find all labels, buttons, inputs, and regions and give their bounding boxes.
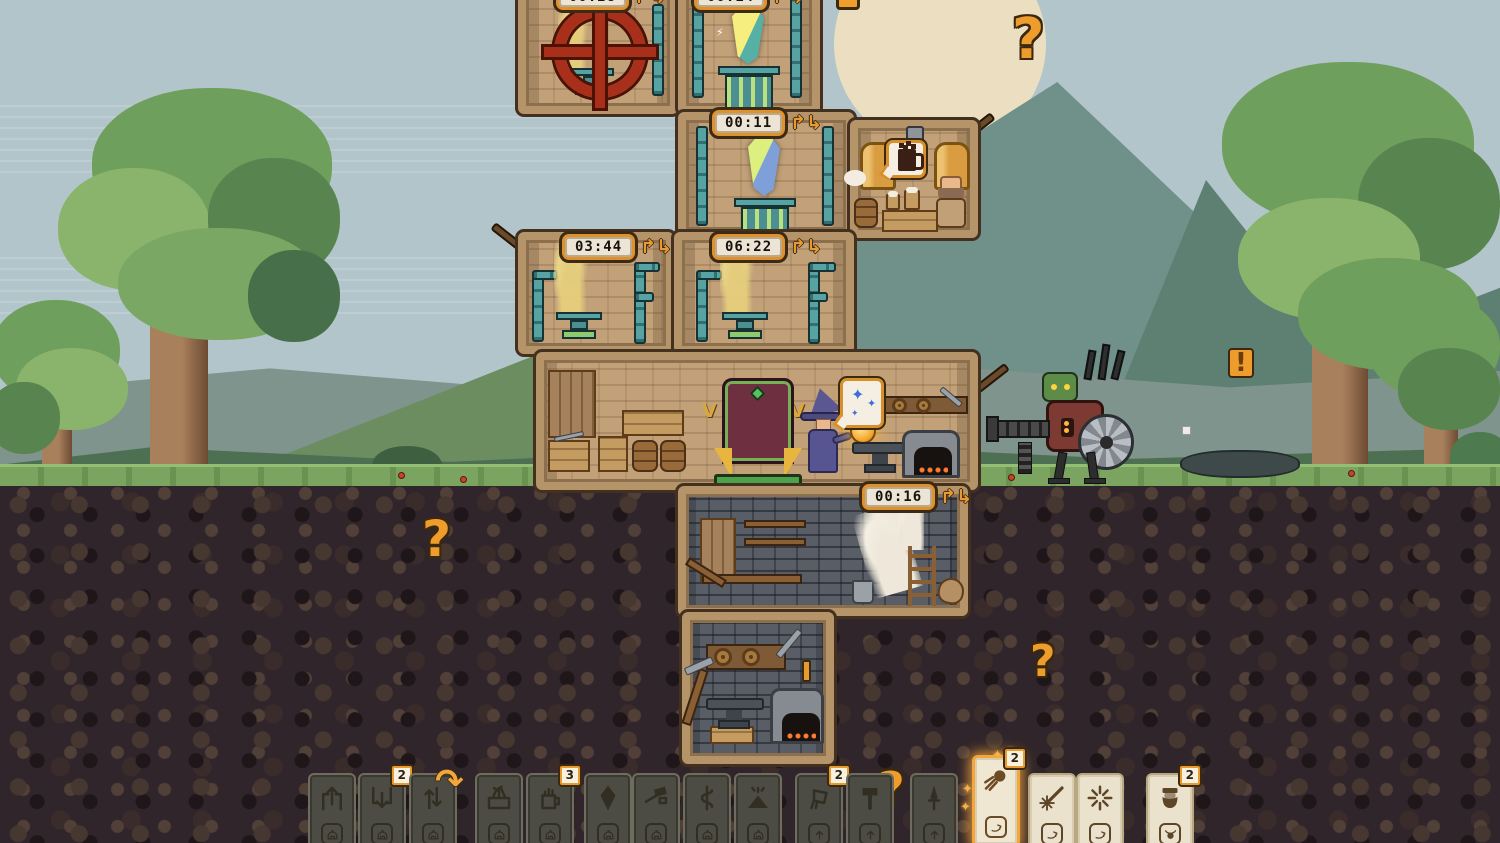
mushroom [398, 472, 405, 479]
cut-bubble-chip [836, 0, 860, 10]
fireball-icon [981, 766, 1011, 796]
pipe [532, 276, 544, 342]
room-brewery[interactable] [850, 120, 978, 238]
mech-foot [1084, 478, 1106, 484]
mushroom [1348, 470, 1355, 477]
beer-mug [886, 194, 900, 210]
fallen-enemy-corpse [1180, 450, 1300, 478]
room-great-hall[interactable]: V V ✦ ✦ ✦ [536, 352, 978, 490]
redo-swoosh-icon [1041, 823, 1063, 843]
throne[interactable] [722, 378, 794, 482]
alchemy-vent[interactable] [556, 312, 602, 344]
timer-value: 00:28 [556, 0, 629, 10]
steam-puff [844, 170, 866, 186]
anvil[interactable] [706, 698, 766, 732]
foliage-blob [248, 250, 340, 342]
toolbox-crate [548, 440, 590, 472]
spark-bolt-icon [1037, 783, 1067, 813]
card-count-badge: 3 [560, 766, 580, 785]
timer-vent-left[interactable]: 03:44↱↳ [562, 234, 672, 260]
helmet-icon [696, 823, 718, 843]
helmet-icon [488, 823, 510, 843]
wooden-door [548, 370, 596, 438]
timer-crystal[interactable]: 00:11↱↳ [712, 110, 822, 136]
crystal-pedestal [718, 66, 780, 100]
barrel [854, 198, 878, 228]
card-spell-fan[interactable] [734, 773, 782, 843]
helmet-icon [747, 823, 769, 843]
card-hammer[interactable] [846, 773, 894, 843]
timer-adjust-arrows-icon[interactable]: ↱↳ [790, 236, 822, 258]
foliage-blob [1398, 348, 1500, 430]
sparkle-icon: ✦ [851, 409, 859, 419]
beer-mug [904, 190, 920, 210]
card-spark-bolt[interactable] [1028, 773, 1076, 843]
mech-foot [1048, 478, 1070, 484]
ladder[interactable] [908, 546, 936, 606]
forge-furnace[interactable] [902, 430, 960, 478]
pipe [634, 262, 660, 272]
goblin-mech-enemy[interactable] [1036, 356, 1136, 484]
mana-crystal[interactable] [744, 128, 784, 196]
timer-adjust-arrows-icon[interactable]: ↱↳ [640, 236, 672, 258]
cycle-hook-icon: ↷ [435, 762, 464, 802]
timer-adjust-arrows-icon[interactable]: ↱↳ [772, 0, 804, 8]
pipe [696, 126, 708, 226]
exclamation-mark-field: ! [1228, 348, 1254, 378]
card-dwarf[interactable]: 2 [1146, 773, 1194, 843]
arrow-up-icon [859, 823, 881, 843]
sparkle-icon: ✦ [851, 385, 864, 404]
brew-mug-icon [535, 783, 565, 813]
card-tool[interactable] [632, 773, 680, 843]
saw-hub [1100, 436, 1113, 449]
question-mark-sky: ? [1012, 12, 1044, 68]
timer-crystal-top[interactable]: 00:14↱↳ [694, 0, 804, 10]
card-gem[interactable] [584, 773, 632, 843]
gun-muzzle [986, 416, 999, 442]
card-weapon-crate[interactable] [475, 773, 523, 843]
pipe [634, 262, 646, 344]
room-crystal-top[interactable]: ⚡ [678, 0, 820, 114]
timer-value: 03:44 [562, 234, 635, 260]
pipe [692, 0, 704, 98]
card-burst[interactable] [1076, 773, 1124, 843]
dwarf-face-icon [1155, 783, 1185, 813]
card-glow-sparkle-icon: ✦ [960, 800, 971, 815]
redo-swoosh-icon [1089, 823, 1111, 843]
beer-mug-icon [898, 149, 916, 171]
question-mark-underground-left: ? [422, 514, 451, 564]
gun-spring [1018, 442, 1032, 474]
pipe [634, 292, 654, 302]
hex-nut [714, 648, 732, 666]
wall-shelf [744, 538, 806, 546]
pipe [696, 276, 708, 342]
card-fireball[interactable]: 2 [972, 755, 1020, 843]
timer-wheel-room[interactable]: 00:28↱↳ [556, 0, 666, 10]
arrow-up-icon [923, 823, 945, 843]
hammer-icon [855, 783, 885, 813]
pipe [808, 262, 836, 272]
timer-adjust-arrows-icon[interactable]: ↱↳ [940, 486, 972, 508]
crate-stack [598, 436, 628, 472]
room-control-wheel[interactable] [518, 0, 678, 114]
timer-value: 00:14 [694, 0, 767, 10]
dagger-icon [919, 783, 949, 813]
sparkle-icon: ✦ [867, 397, 876, 410]
timer-underground[interactable]: 00:16↱↳ [862, 484, 972, 510]
helmet-icon [321, 823, 343, 843]
question-mark-underground-right: ? [1030, 640, 1056, 684]
timer-vent-right[interactable]: 06:22↱↳ [712, 234, 822, 260]
pipe [808, 262, 820, 344]
card-insert-down[interactable]: 2 [358, 773, 406, 843]
card-glow-sparkle-icon: ✦ [992, 748, 1003, 763]
eject-up-icon [317, 783, 347, 813]
arrow-up-icon [808, 823, 830, 843]
mech-leg [1054, 451, 1068, 480]
crystal-pedestal [734, 198, 796, 230]
insert-down-icon [367, 783, 397, 813]
pipe [808, 292, 828, 302]
burst-icon [1085, 783, 1115, 813]
hex-nut [892, 398, 907, 413]
helmet-icon [371, 823, 393, 843]
hex-nut [916, 398, 931, 413]
serpent-staff-icon [692, 783, 722, 813]
timer-adjust-arrows-icon[interactable]: ↱↳ [790, 112, 822, 134]
card-count-badge: 2 [1005, 749, 1025, 768]
alchemy-vent[interactable] [722, 312, 768, 344]
timer-value: 00:11 [712, 110, 785, 136]
helmet-icon [539, 823, 561, 843]
goblin-eye [1064, 384, 1070, 390]
projectile-pixel [1182, 426, 1191, 435]
spell-fan-icon [743, 783, 773, 813]
barrel [632, 440, 658, 472]
weapon-crate-icon [484, 783, 514, 813]
wall-shelf [744, 520, 806, 528]
card-brew-mug[interactable]: 3 [526, 773, 574, 843]
goblin-head [1042, 372, 1078, 402]
forge-furnace[interactable] [770, 688, 824, 744]
timer-value: 06:22 [712, 234, 785, 260]
timer-value: 00:16 [862, 484, 935, 510]
request-bubble-beer[interactable] [886, 140, 926, 178]
room-cellar-smithy[interactable] [682, 612, 834, 764]
card-serpent-staff[interactable] [683, 773, 731, 843]
bar-counter [882, 210, 938, 232]
helmet-icon [597, 823, 619, 843]
helmet-icon [645, 823, 667, 843]
card-dagger[interactable] [910, 773, 958, 843]
goblin-eye [1051, 384, 1057, 390]
gatling-gun [996, 420, 1050, 438]
control-wheel[interactable] [550, 2, 650, 102]
crate-stack [622, 410, 684, 436]
helmet-icon [422, 823, 444, 843]
pipe [822, 126, 834, 226]
redo-swoosh-icon [985, 816, 1007, 838]
hex-nut [742, 648, 760, 666]
wall-sconce: V [702, 400, 717, 422]
pipe [790, 0, 802, 98]
timer-adjust-arrows-icon[interactable]: ↱↳ [634, 0, 666, 8]
request-bubble-craft[interactable]: ✦ ✦ ✦ [840, 378, 884, 428]
bull-head-icon [1159, 823, 1181, 843]
card-count-badge: 2 [1180, 766, 1200, 785]
card-eject-up[interactable] [308, 773, 356, 843]
game-stage: ⚡ [0, 0, 1500, 843]
gem-icon [593, 783, 623, 813]
barrel [660, 440, 686, 472]
pour-bucket-icon [804, 783, 834, 813]
pickaxe-handle [681, 668, 708, 726]
card-glow-sparkle-icon: ✦ [962, 782, 973, 797]
lightning-glint: ⚡ [716, 26, 724, 39]
tool-gun-icon [641, 783, 671, 813]
mushroom [1008, 474, 1015, 481]
sack [936, 576, 966, 606]
card-pour-bucket[interactable]: 2 [795, 773, 843, 843]
mech-window [1061, 418, 1074, 437]
mushroom [460, 476, 467, 483]
torch [802, 660, 811, 682]
dwarf-body [936, 198, 966, 228]
pipe [696, 270, 722, 280]
